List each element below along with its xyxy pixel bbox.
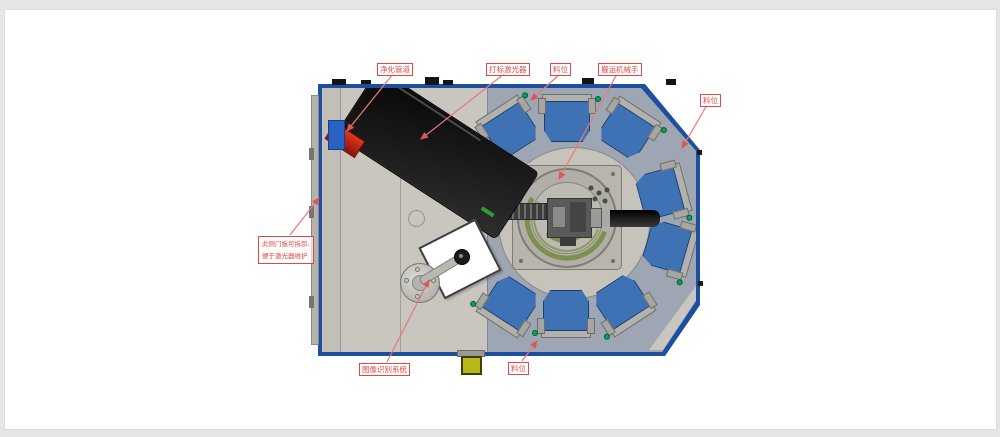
tray-tab	[537, 318, 545, 334]
actuator-detail	[560, 238, 576, 246]
camera-head	[454, 249, 470, 265]
door-note-line1: 此侧门板可拆卸,	[262, 238, 310, 250]
tray-pan	[543, 290, 589, 331]
door-hinge	[309, 206, 314, 218]
actuator-detail	[570, 202, 586, 232]
top-fitting	[361, 80, 371, 84]
door-hinge	[309, 296, 314, 308]
yellow-sensor-block	[461, 356, 482, 375]
tag-door-note: 此侧门板可拆卸, 便于激光器维护	[258, 236, 314, 264]
tag-vision-system: 图像识别系统	[359, 363, 410, 376]
top-fitting	[582, 78, 594, 84]
arm-band	[602, 210, 610, 227]
actuator-detail	[552, 206, 566, 228]
bolt	[404, 278, 409, 283]
bolt	[415, 267, 420, 272]
tag-station-bottom: 料位	[508, 362, 529, 375]
tray-pan	[544, 101, 590, 142]
floor-port-circle	[408, 210, 425, 227]
machine-body	[318, 84, 700, 356]
tray-tab	[538, 98, 546, 114]
material-tray	[539, 288, 593, 338]
top-fitting	[425, 77, 439, 85]
bolt	[415, 294, 420, 299]
tag-purification-pipe: 净化管道	[377, 63, 413, 76]
edge-fitting	[698, 281, 703, 286]
tag-marking-laser: 打标激光器	[486, 63, 530, 76]
indicator-dot	[532, 330, 538, 336]
top-fitting	[332, 79, 346, 85]
gripper-arm	[602, 210, 660, 227]
edge-fitting	[697, 150, 702, 155]
tag-handling-robot: 搬运机械手	[598, 63, 642, 76]
tag-station-top: 料位	[550, 63, 571, 76]
indicator-dot	[595, 96, 601, 102]
tag-station-right: 料位	[700, 94, 721, 107]
top-fitting	[666, 79, 676, 85]
top-fitting	[443, 80, 453, 85]
tray-tab	[587, 318, 595, 334]
door-hinge	[309, 148, 314, 160]
machine-interior	[322, 88, 696, 352]
door-note-line2: 便于激光器维护	[262, 250, 310, 262]
camera-lens	[459, 254, 463, 258]
laser-status-light	[481, 206, 495, 217]
pipe-bracket	[328, 120, 345, 150]
arm-coupler	[590, 208, 602, 228]
material-tray	[540, 94, 594, 144]
